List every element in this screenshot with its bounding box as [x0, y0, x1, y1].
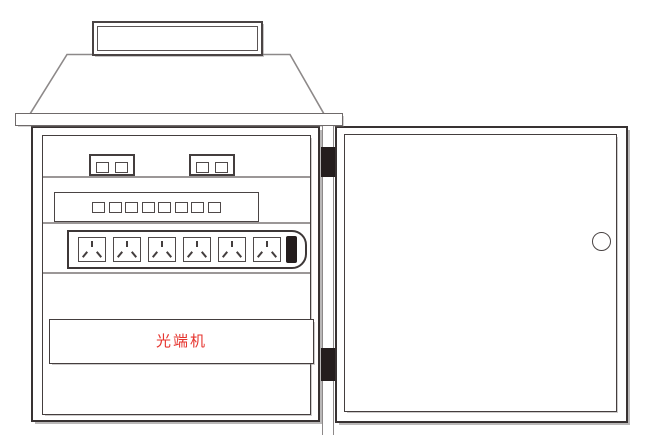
switch-port [208, 202, 221, 213]
shelf-divider [43, 176, 310, 178]
socket-left-pin [222, 251, 228, 258]
power-socket [253, 237, 281, 262]
equipment-compartment: 光端机 [31, 126, 320, 422]
power-socket [78, 237, 106, 262]
shelf-divider [43, 222, 310, 224]
switch-port [142, 202, 155, 213]
power-socket [113, 237, 141, 262]
socket-earth-pin [161, 241, 163, 247]
socket-earth-pin [266, 241, 268, 247]
socket-earth-pin [91, 241, 93, 247]
socket-left-pin [187, 251, 193, 258]
socket-right-pin [201, 251, 207, 258]
socket-left-pin [82, 251, 88, 258]
power-socket [148, 237, 176, 262]
socket-right-pin [96, 251, 102, 258]
socket-earth-pin [196, 241, 198, 247]
module-indicator-row [196, 162, 228, 173]
terminal-module [189, 154, 235, 176]
module-indicator-row [96, 162, 128, 173]
switch-port [125, 202, 138, 213]
terminal-module [89, 154, 135, 176]
optical-transceiver-label: 光端机 [156, 334, 207, 349]
power-socket-row [78, 237, 281, 262]
cabinet-top-sign-inner [97, 26, 258, 51]
door-knob [592, 232, 611, 251]
module-indicator [96, 162, 109, 173]
switch-port [158, 202, 171, 213]
door-hinge-top [321, 147, 335, 177]
module-indicator [115, 162, 128, 173]
socket-right-pin [236, 251, 242, 258]
socket-right-pin [166, 251, 172, 258]
switch-port [92, 202, 105, 213]
power-socket [218, 237, 246, 262]
cabinet-door-panel [344, 134, 617, 412]
switch-port [191, 202, 204, 213]
socket-left-pin [152, 251, 158, 258]
door-hinge-strip [322, 126, 334, 435]
module-indicator [215, 162, 228, 173]
socket-left-pin [257, 251, 263, 258]
cabinet-eave [15, 113, 343, 126]
door-hinge-bottom [321, 348, 335, 381]
switch-port-row [92, 202, 221, 213]
socket-earth-pin [231, 241, 233, 247]
power-strip [67, 230, 307, 269]
socket-left-pin [117, 251, 123, 258]
power-switch [286, 236, 297, 263]
socket-right-pin [271, 251, 277, 258]
socket-right-pin [131, 251, 137, 258]
power-socket [183, 237, 211, 262]
module-indicator [196, 162, 209, 173]
shelf-divider [43, 272, 310, 274]
socket-earth-pin [126, 241, 128, 247]
switch-port [175, 202, 188, 213]
switch-port [109, 202, 122, 213]
optical-transceiver: 光端机 [49, 319, 314, 364]
network-switch [54, 192, 259, 222]
cabinet-door [335, 126, 628, 423]
equipment-panel: 光端机 [42, 135, 311, 415]
cabinet-diagram: 光端机 [0, 0, 650, 438]
cabinet-top-sign [92, 21, 263, 56]
cabinet-roof [20, 53, 332, 116]
